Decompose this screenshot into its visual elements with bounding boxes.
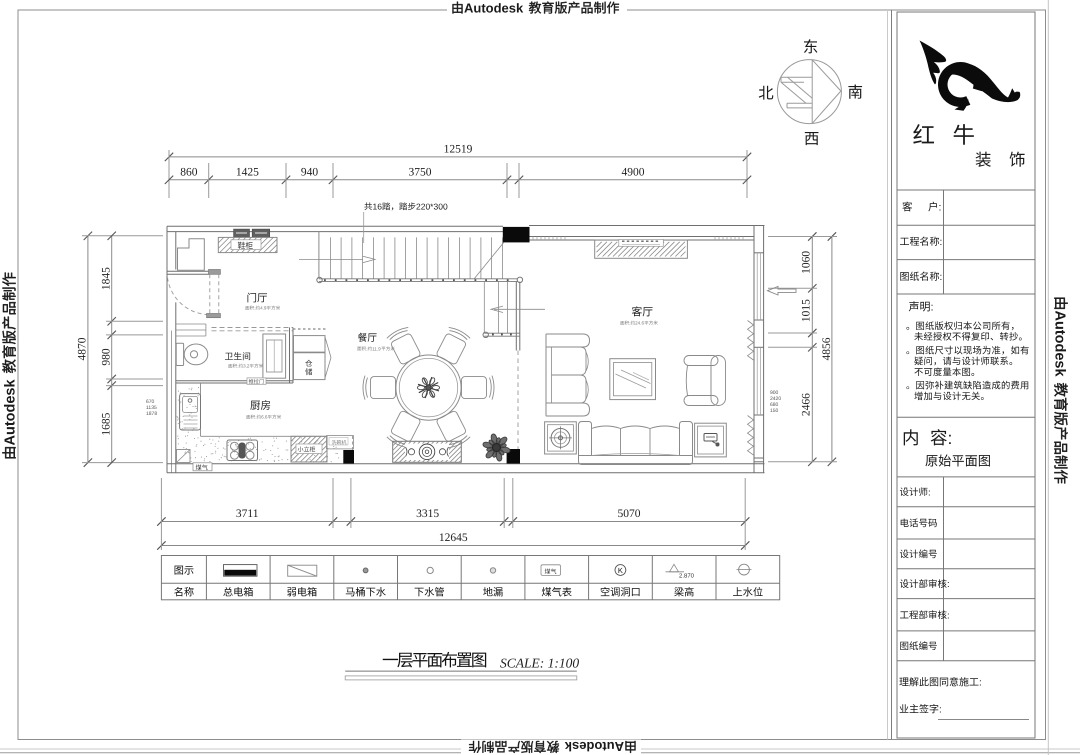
svg-text:6.6: 6.6: [261, 415, 268, 420]
svg-text:1060: 1060: [801, 251, 813, 274]
svg-text:2466: 2466: [801, 393, 813, 416]
svg-text:1425: 1425: [236, 166, 259, 178]
svg-text::: :: [939, 705, 942, 716]
svg-text::: :: [931, 302, 934, 314]
svg-text:Autodesk: Autodesk: [564, 739, 624, 754]
svg-text:12519: 12519: [444, 144, 473, 156]
svg-text:K: K: [618, 566, 623, 575]
svg-text:4900: 4900: [622, 166, 645, 178]
svg-text:2.870: 2.870: [679, 573, 695, 580]
svg-text:16: 16: [373, 202, 383, 212]
svg-text::: :: [928, 487, 931, 498]
svg-text:3315: 3315: [416, 508, 439, 520]
svg-text:1845: 1845: [101, 267, 113, 290]
svg-text::: :: [629, 321, 630, 326]
svg-text:3711: 3711: [236, 508, 259, 520]
svg-text::: :: [254, 306, 255, 311]
svg-text:SCALE: 1:100: SCALE: 1:100: [500, 656, 579, 671]
svg-text::: :: [939, 202, 942, 214]
svg-text:3.2: 3.2: [243, 364, 250, 369]
svg-text:Autodesk: Autodesk: [3, 379, 19, 446]
svg-text:940: 940: [301, 166, 319, 178]
svg-text::: :: [255, 415, 256, 420]
svg-text:4870: 4870: [77, 337, 89, 360]
svg-text:11.9: 11.9: [372, 346, 381, 351]
svg-text:1685: 1685: [101, 412, 113, 435]
svg-text:Autodesk: Autodesk: [1052, 311, 1068, 378]
svg-text:4.9: 4.9: [260, 306, 267, 311]
svg-text:980: 980: [101, 348, 113, 366]
svg-text::: :: [366, 346, 367, 351]
svg-text::: :: [237, 364, 238, 369]
svg-text:Autodesk: Autodesk: [464, 1, 524, 16]
svg-text:3750: 3750: [409, 166, 432, 178]
svg-text:4856: 4856: [821, 337, 833, 360]
svg-text:150: 150: [770, 408, 779, 414]
svg-text:5070: 5070: [618, 508, 641, 520]
svg-text:12645: 12645: [439, 532, 468, 544]
svg-text::: :: [948, 428, 953, 448]
svg-text:860: 860: [180, 166, 198, 178]
svg-text:24.6: 24.6: [635, 321, 644, 326]
svg-text::: :: [947, 579, 950, 590]
svg-text::: :: [940, 272, 943, 283]
svg-text::: :: [979, 678, 982, 689]
svg-text::: :: [940, 237, 943, 248]
svg-text:1878: 1878: [146, 411, 157, 417]
svg-text:220*300: 220*300: [416, 202, 448, 212]
svg-text::: :: [947, 610, 950, 621]
svg-text:1015: 1015: [801, 299, 813, 322]
